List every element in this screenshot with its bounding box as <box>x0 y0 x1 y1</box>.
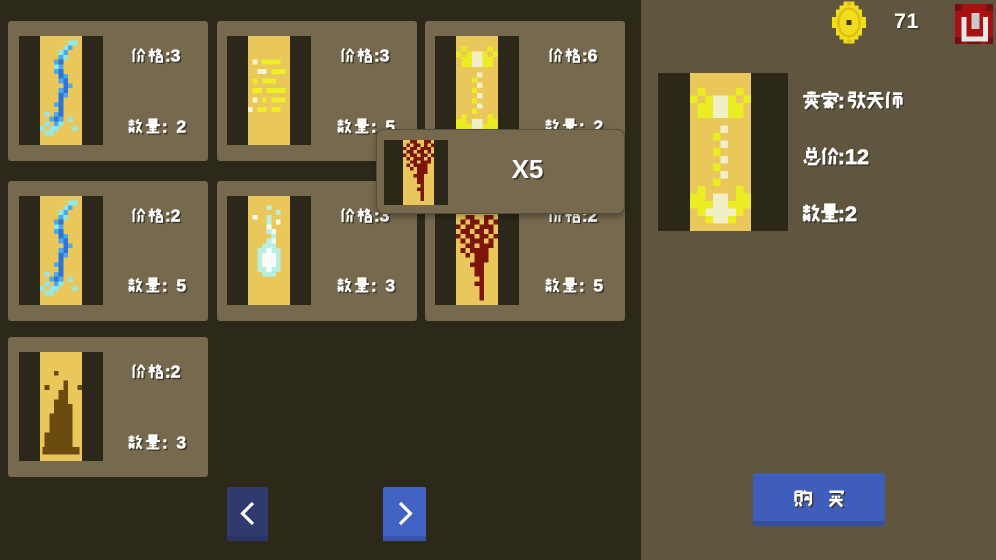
svg-text::3: :3 <box>165 45 181 65</box>
svg-text:: 2: : 2 <box>162 116 187 136</box>
svg-text::6: :6 <box>581 45 597 65</box>
svg-text::2: :2 <box>838 201 857 226</box>
svg-text::2: :2 <box>165 205 181 225</box>
svg-text::2: :2 <box>165 361 181 381</box>
svg-text::3: :3 <box>373 45 389 65</box>
svg-text:: 3: : 3 <box>162 432 187 452</box>
svg-text:: 5: : 5 <box>578 275 603 295</box>
svg-text::: : <box>838 87 845 112</box>
svg-text:: 3: : 3 <box>370 275 395 295</box>
svg-text:: 5: : 5 <box>162 275 187 295</box>
svg-text::12: :12 <box>838 144 869 169</box>
